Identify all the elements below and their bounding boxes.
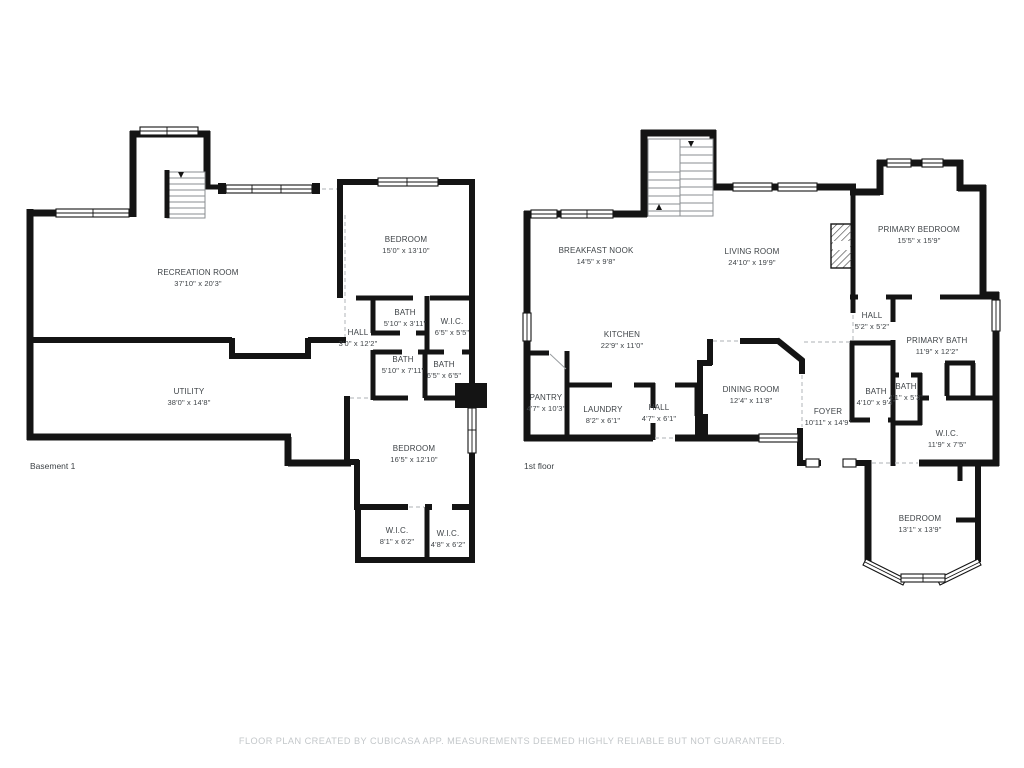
room-name: PRIMARY BEDROOM	[878, 224, 960, 236]
room-dimensions: 12'4" x 11'8"	[723, 395, 780, 406]
room-label-breakfast-nook: BREAKFAST NOOK14'5" x 9'8"	[559, 245, 634, 267]
room-name: BATH	[427, 359, 461, 371]
room-label-bedroom: BEDROOM15'0" x 13'10"	[382, 234, 429, 256]
room-label-w-i-c: W.I.C.6'5" x 5'5"	[435, 316, 469, 338]
room-dimensions: 8'2" x 6'1"	[583, 415, 622, 426]
room-name: BATH	[382, 354, 425, 366]
floor-plan-page: RECREATION ROOM37'10" x 20'3"BEDROOM15'0…	[0, 0, 1024, 768]
room-name: PANTRY	[527, 392, 566, 404]
room-label-primary-bedroom: PRIMARY BEDROOM15'5" x 15'9"	[878, 224, 960, 246]
room-dimensions: 4'7" x 6'1"	[642, 413, 676, 424]
room-dimensions: 15'5" x 15'9"	[878, 235, 960, 246]
room-label-w-i-c: W.I.C.8'1" x 6'2"	[380, 525, 414, 547]
room-dimensions: 10'11" x 14'9"	[805, 417, 852, 428]
room-label-bedroom: BEDROOM16'5" x 12'10"	[390, 443, 437, 465]
room-label-w-i-c: W.I.C.4'8" x 6'2"	[431, 528, 465, 550]
room-name: FOYER	[805, 406, 852, 418]
room-name: BREAKFAST NOOK	[559, 245, 634, 257]
room-dimensions: 24'10" x 19'9"	[725, 257, 780, 268]
room-label-hall: HALL5'2" x 5'2"	[855, 310, 889, 332]
disclaimer-text: FLOOR PLAN CREATED BY CUBICASA APP. MEAS…	[0, 736, 1024, 746]
room-label-w-i-c: W.I.C.11'9" x 7'5"	[928, 428, 966, 450]
room-name: HALL	[855, 310, 889, 322]
room-dimensions: 16'5" x 12'10"	[390, 454, 437, 465]
room-label-kitchen: KITCHEN22'9" x 11'0"	[601, 329, 644, 351]
room-dimensions: 5'10" x 3'11"	[384, 318, 427, 329]
room-dimensions: 6'5" x 5'5"	[435, 327, 469, 338]
room-name: BEDROOM	[382, 234, 429, 246]
room-dimensions: 5'2" x 5'2"	[855, 321, 889, 332]
room-dimensions: 15'0" x 13'10"	[382, 245, 429, 256]
room-name: BEDROOM	[390, 443, 437, 455]
room-name: BATH	[384, 307, 427, 319]
room-name: W.I.C.	[435, 316, 469, 328]
room-dimensions: 13'1" x 13'9"	[898, 524, 941, 535]
room-label-bath: BATH5'10" x 3'11"	[384, 307, 427, 329]
room-label-bedroom: BEDROOM13'1" x 13'9"	[898, 513, 941, 535]
room-name: W.I.C.	[380, 525, 414, 537]
basement-walls	[27, 127, 487, 563]
floor-plan-drawing	[0, 0, 1024, 768]
room-label-bath: BATH5'10" x 7'11"	[382, 354, 425, 376]
room-name: W.I.C.	[928, 428, 966, 440]
room-label-bath: BATH4'1" x 5'3"	[889, 381, 923, 403]
floor-caption-1st-floor: 1st floor	[524, 461, 554, 471]
room-label-laundry: LAUNDRY8'2" x 6'1"	[583, 404, 622, 426]
room-dimensions: 37'10" x 20'3"	[157, 278, 238, 289]
room-label-living-room: LIVING ROOM24'10" x 19'9"	[725, 246, 780, 268]
room-dimensions: 38'0" x 14'8"	[167, 397, 210, 408]
room-name: PRIMARY BATH	[907, 335, 968, 347]
floor-caption-basement-1: Basement 1	[30, 461, 75, 471]
room-label-bath: BATH6'5" x 6'5"	[427, 359, 461, 381]
room-label-foyer: FOYER10'11" x 14'9"	[805, 406, 852, 428]
room-name: HALL	[642, 402, 676, 414]
room-name: HALL	[339, 327, 378, 339]
room-dimensions: 8'1" x 6'2"	[380, 536, 414, 547]
room-label-utility: UTILITY38'0" x 14'8"	[167, 386, 210, 408]
room-name: LAUNDRY	[583, 404, 622, 416]
room-label-hall: HALL4'7" x 6'1"	[642, 402, 676, 424]
room-dimensions: 6'5" x 6'5"	[427, 370, 461, 381]
room-dimensions: 11'9" x 7'5"	[928, 439, 966, 450]
room-label-recreation-room: RECREATION ROOM37'10" x 20'3"	[157, 267, 238, 289]
room-dimensions: 4'8" x 6'2"	[431, 539, 465, 550]
room-name: LIVING ROOM	[725, 246, 780, 258]
room-name: RECREATION ROOM	[157, 267, 238, 279]
room-dimensions: 22'9" x 11'0"	[601, 340, 644, 351]
room-dimensions: 5'10" x 7'11"	[382, 365, 425, 376]
room-dimensions: 4'1" x 5'3"	[889, 392, 923, 403]
room-name: DINING ROOM	[723, 384, 780, 396]
room-dimensions: 11'9" x 12'2"	[907, 346, 968, 357]
room-label-dining-room: DINING ROOM12'4" x 11'8"	[723, 384, 780, 406]
room-label-primary-bath: PRIMARY BATH11'9" x 12'2"	[907, 335, 968, 357]
room-label-pantry: PANTRY4'7" x 10'3"	[527, 392, 566, 414]
room-name: W.I.C.	[431, 528, 465, 540]
room-dimensions: 4'7" x 10'3"	[527, 403, 566, 414]
room-name: UTILITY	[167, 386, 210, 398]
room-name: BEDROOM	[898, 513, 941, 525]
room-name: BATH	[889, 381, 923, 393]
room-dimensions: 3'0" x 12'2"	[339, 338, 378, 349]
room-dimensions: 14'5" x 9'8"	[559, 256, 634, 267]
room-name: KITCHEN	[601, 329, 644, 341]
room-label-hall: HALL3'0" x 12'2"	[339, 327, 378, 349]
